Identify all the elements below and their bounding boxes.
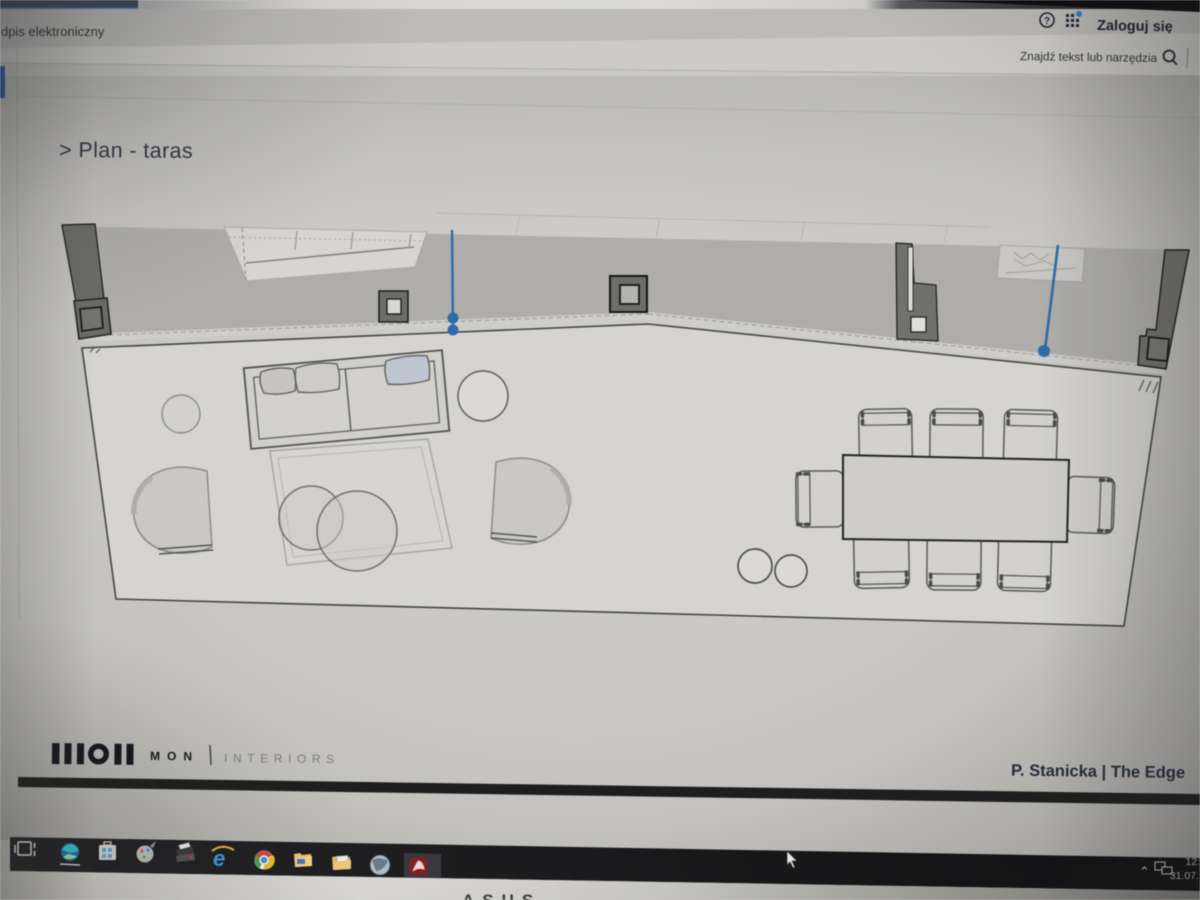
svg-text:⌃: ⌃ — [1139, 864, 1150, 879]
svg-text:?: ? — [1044, 16, 1050, 27]
svg-text:ASUS: ASUS — [462, 891, 541, 900]
svg-text:dpis elektroniczny: dpis elektroniczny — [1, 24, 105, 39]
svg-text:12:: 12: — [1185, 856, 1200, 868]
svg-text:> Plan - taras: > Plan - taras — [59, 138, 193, 163]
svg-text:Zaloguj się: Zaloguj się — [1097, 18, 1173, 35]
svg-text:P. Stanicka | The Edge: P. Stanicka | The Edge — [1011, 762, 1185, 782]
svg-text:31.07.: 31.07. — [1170, 870, 1199, 882]
svg-text:Znajdź tekst lub narzędzia: Znajdź tekst lub narzędzia — [1020, 49, 1158, 65]
svg-text:MON: MON — [150, 749, 199, 764]
svg-text:INTERIORS: INTERIORS — [224, 751, 340, 766]
